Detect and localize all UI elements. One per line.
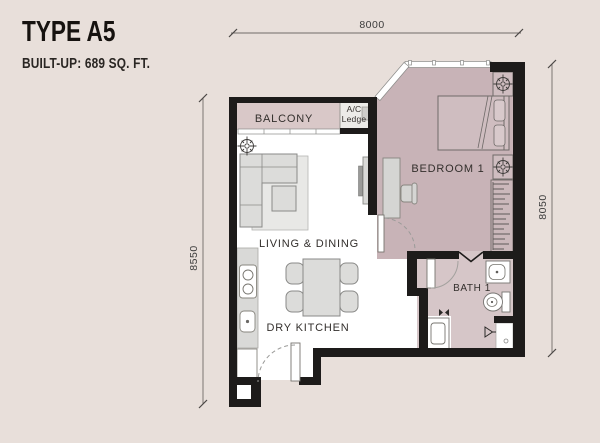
sink-drain bbox=[246, 320, 249, 323]
dining-table bbox=[303, 259, 340, 316]
ac-ledge-label-line1: A/C bbox=[347, 104, 362, 114]
wall-entry-right bbox=[299, 377, 321, 385]
wall-bedroom-bottom-right bbox=[483, 251, 513, 259]
coffee-table bbox=[272, 186, 296, 211]
window-mullion bbox=[433, 61, 436, 66]
bath-label: BATH 1 bbox=[453, 283, 491, 294]
dry-kitchen-label: DRY KITCHEN bbox=[267, 322, 350, 334]
pillow bbox=[494, 100, 505, 121]
entrance-niche-floor bbox=[236, 385, 251, 399]
toilet-drain bbox=[491, 301, 493, 303]
balcony-sliding-door bbox=[238, 129, 340, 134]
wall-hall-step-a bbox=[407, 251, 417, 292]
bedroom-door-leaf bbox=[378, 215, 384, 252]
window-mullion bbox=[487, 61, 490, 66]
bath-sink-drain bbox=[496, 271, 499, 274]
wall-bath-left bbox=[419, 288, 428, 350]
window-mullion bbox=[409, 61, 412, 66]
wall-ledge-bottom bbox=[340, 128, 377, 134]
wall-left bbox=[229, 97, 237, 407]
ac-ledge-label-line2: Ledge bbox=[342, 114, 367, 124]
floor-plan-drawing: BALCONY A/C Ledge BEDROOM 1 LIVING & DIN… bbox=[0, 0, 600, 443]
pillow bbox=[494, 125, 505, 146]
dim-left-value: 8550 bbox=[188, 245, 200, 270]
dresser bbox=[383, 158, 400, 218]
wall-entry-left bbox=[235, 377, 253, 385]
dining-chair bbox=[286, 291, 304, 312]
floor-plan-page: TYPE A5 BUILT-UP: 689 SQ. FT. bbox=[0, 0, 600, 443]
wall-balcony-top bbox=[229, 97, 377, 103]
balcony-label: BALCONY bbox=[255, 113, 313, 125]
toilet-tank bbox=[502, 292, 510, 312]
shower-floor bbox=[496, 323, 513, 350]
wall-right bbox=[513, 62, 525, 357]
bedroom-label: BEDROOM 1 bbox=[411, 163, 484, 175]
dining-chair bbox=[340, 263, 358, 284]
wall-top-right-corner bbox=[490, 62, 525, 72]
dining-chair bbox=[340, 291, 358, 312]
window-mullion bbox=[461, 61, 464, 66]
bath-door-leaf bbox=[427, 259, 435, 288]
dining-chair bbox=[286, 263, 304, 284]
tv bbox=[359, 166, 363, 196]
bedroom-window bbox=[405, 62, 491, 68]
wall-niche-bottom bbox=[229, 399, 261, 407]
wall-shower-stub bbox=[494, 316, 513, 323]
dim-top-value: 8000 bbox=[359, 19, 384, 31]
wall-bedroom-left bbox=[368, 97, 377, 215]
wardrobe bbox=[491, 180, 513, 252]
fridge bbox=[237, 349, 257, 378]
living-dining-label: LIVING & DINING bbox=[259, 238, 359, 250]
entrance-door-leaf bbox=[291, 343, 300, 381]
dim-right-value: 8050 bbox=[537, 194, 549, 219]
chair-back bbox=[412, 183, 417, 204]
